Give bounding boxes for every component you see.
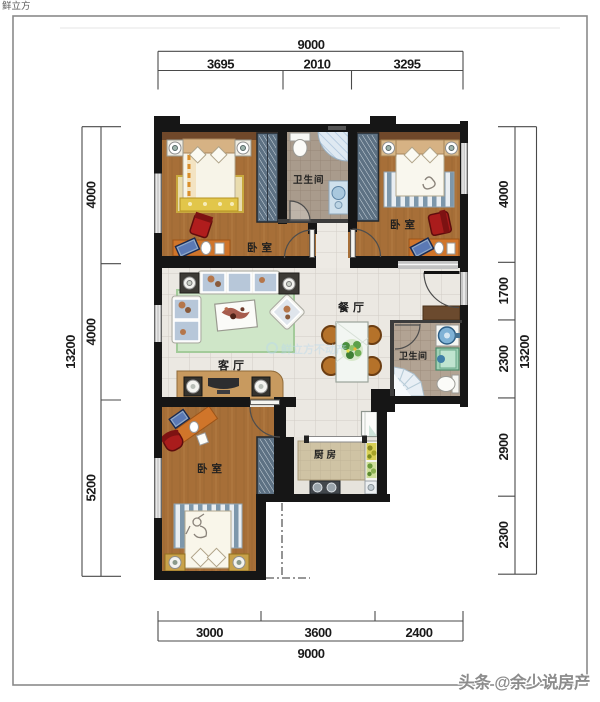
svg-text:卧室: 卧室 (247, 241, 276, 254)
svg-text:13200: 13200 (517, 335, 532, 369)
svg-text:3600: 3600 (305, 625, 332, 640)
svg-text:3295: 3295 (394, 57, 421, 72)
svg-text:9000: 9000 (298, 646, 325, 661)
svg-text:卧室: 卧室 (390, 218, 419, 231)
svg-text:客厅: 客厅 (217, 358, 248, 372)
svg-text:5200: 5200 (84, 474, 99, 501)
svg-text:4000: 4000 (84, 318, 99, 345)
svg-text:2010: 2010 (304, 57, 331, 72)
svg-text:3695: 3695 (207, 57, 234, 72)
svg-text:1700: 1700 (496, 277, 511, 304)
svg-text:4000: 4000 (84, 181, 99, 208)
svg-text:2900: 2900 (496, 433, 511, 460)
svg-text:卫生间: 卫生间 (399, 350, 428, 361)
svg-text:头条 @余少说房产: 头条 @余少说房产 (458, 672, 590, 692)
svg-text:3000: 3000 (196, 625, 223, 640)
svg-text:餐厅: 餐厅 (337, 300, 368, 314)
svg-text:2300: 2300 (496, 345, 511, 372)
svg-text:鲜立方: 鲜立方 (2, 0, 31, 12)
svg-text:13200: 13200 (63, 335, 78, 369)
svg-text:4000: 4000 (496, 181, 511, 208)
svg-text:鲜立方不动产: 鲜立方不动产 (281, 342, 347, 356)
svg-text:2300: 2300 (496, 521, 511, 548)
svg-text:2400: 2400 (406, 625, 433, 640)
svg-text:卧室: 卧室 (197, 462, 226, 475)
svg-text:9000: 9000 (298, 37, 325, 52)
svg-text:卫生间: 卫生间 (293, 174, 325, 186)
svg-text:厨房: 厨房 (314, 449, 339, 461)
